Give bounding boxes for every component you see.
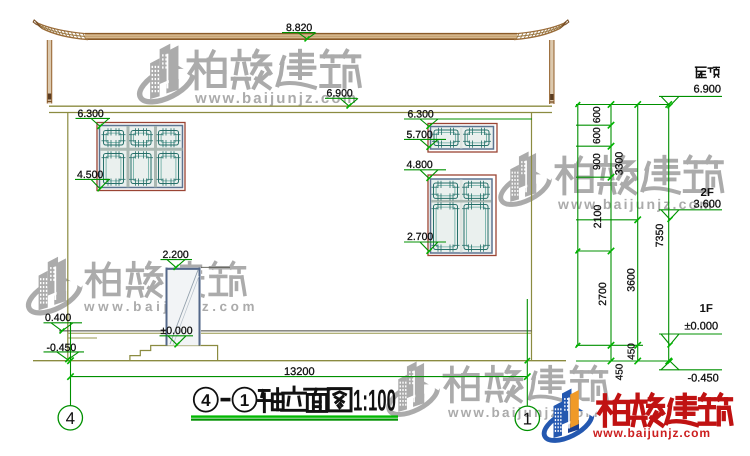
svg-text:2100: 2100: [592, 205, 604, 229]
svg-text:600: 600: [592, 106, 603, 123]
svg-text:1: 1: [240, 391, 249, 410]
svg-text:±0.000: ±0.000: [685, 320, 719, 332]
svg-text:7350: 7350: [654, 224, 666, 248]
svg-text:600: 600: [592, 127, 603, 144]
svg-text:2.700: 2.700: [407, 231, 433, 243]
svg-text:2F: 2F: [701, 187, 714, 199]
svg-text:4: 4: [201, 391, 211, 410]
svg-text:3300: 3300: [613, 152, 625, 176]
svg-text:1F: 1F: [700, 303, 713, 315]
svg-text:1:100: 1:100: [353, 385, 396, 418]
svg-text:www.baijunjz.com: www.baijunjz.com: [592, 426, 711, 440]
svg-text:13200: 13200: [284, 366, 315, 378]
svg-text:900: 900: [592, 153, 603, 170]
svg-text:3.600: 3.600: [694, 199, 722, 211]
svg-text:-0.450: -0.450: [688, 372, 719, 384]
svg-text:450: 450: [615, 363, 626, 380]
svg-text:3600: 3600: [625, 268, 637, 292]
svg-text:2700: 2700: [597, 282, 609, 306]
svg-text:4: 4: [66, 409, 75, 428]
svg-text:450: 450: [627, 343, 638, 360]
svg-text:8.820: 8.820: [286, 22, 312, 34]
svg-text:1: 1: [523, 410, 532, 429]
svg-text:6.900: 6.900: [327, 87, 353, 99]
svg-text:±0.000: ±0.000: [161, 325, 193, 337]
svg-text:6.900: 6.900: [694, 84, 722, 96]
